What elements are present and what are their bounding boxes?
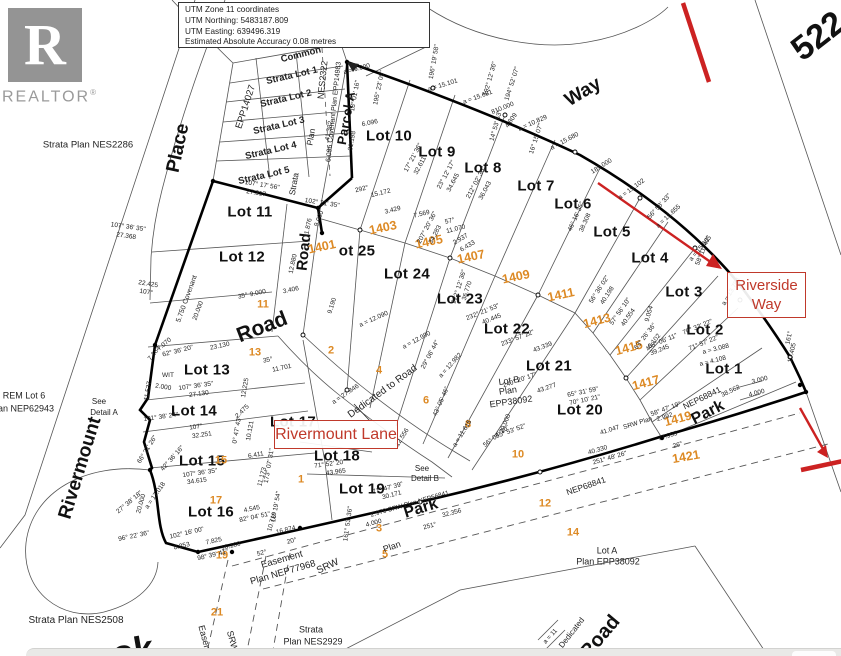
dimension-label: 34.615 <box>187 477 208 486</box>
plan-label: Strata <box>288 172 300 196</box>
dimension-label: 31.198 <box>348 131 358 152</box>
dimension-label: 35° <box>238 293 249 301</box>
plan-label: See <box>415 465 429 473</box>
dimension-label: WIT <box>162 373 174 380</box>
plan-label: EPP38092 <box>489 395 533 410</box>
dimension-label: 161° 53' 36" <box>343 506 354 542</box>
dimension-label: 107° 36' 35" <box>110 222 146 233</box>
address-number: 1421 <box>671 448 701 465</box>
plan-label: NES2322 <box>317 60 330 99</box>
dimension-label: 27.368 <box>116 232 137 241</box>
dimension-label: 43.965 <box>326 468 347 477</box>
dimension-label: 185.000 <box>590 158 613 176</box>
dimension-label: 35° <box>263 357 274 365</box>
dimension-label: 8.253 <box>173 542 190 552</box>
dimension-label: 11.537 <box>144 381 154 401</box>
utm-line: UTM Easting: 639496.319 <box>185 27 429 38</box>
dimension-label: 27.317 <box>246 189 267 199</box>
map-labels-layer: PlaceRivermountRoadRoadWayParkParkRoad52… <box>0 0 841 656</box>
lot-label: Lot 3 <box>665 285 702 300</box>
dimension-label: 52° <box>256 550 267 559</box>
plan-label: Detail B <box>411 475 439 483</box>
dimension-label: 16° 19' 54" <box>271 491 283 523</box>
street-label: Rivermount <box>55 415 104 522</box>
plan-label: Detail A <box>90 409 118 417</box>
dimension-label: 3.429 <box>384 206 401 216</box>
dimension-label: 6.411 <box>248 451 265 460</box>
dimension-label: 292° <box>355 185 370 195</box>
lot-label: Lot 16 <box>188 505 234 520</box>
address-number: 1401 <box>307 238 337 256</box>
plan-label: Strata <box>299 626 323 635</box>
lot-label: Lot 24 <box>384 267 430 282</box>
plan-label: Strata Plan NES2508 <box>28 616 123 626</box>
strata-lot-label: Strata Lot 1 <box>265 65 318 86</box>
plan-label: See <box>92 398 106 406</box>
dimension-label: 96° 22' 36" <box>118 531 150 544</box>
realtor-caption: REALTOR® <box>2 88 112 106</box>
plan-label: Plan <box>382 540 402 555</box>
address-number: 1409 <box>501 268 531 286</box>
dimension-label: 0° 47' 43" <box>232 416 243 445</box>
dimension-label: 66° 21' 26" <box>137 435 159 465</box>
dimension-label: SRW Plan <box>623 417 653 432</box>
plan-label: SRW <box>315 558 340 577</box>
address-number: 13 <box>249 348 261 359</box>
dimension-label: a = 15.102 <box>618 178 647 201</box>
dimension-label: 15.172 <box>371 188 392 199</box>
dimension-label: 10.121 <box>246 421 256 442</box>
dimension-label: 9.190 <box>327 297 338 314</box>
plan-label: NEP68841 <box>565 475 607 496</box>
realtor-logo: R <box>8 8 82 82</box>
dimension-label: a = 11.615 <box>452 419 474 448</box>
dimension-label: 3.406 <box>282 286 299 296</box>
address-number: 4 <box>376 366 382 377</box>
utm-line: Estimated Absolute Accuracy 0.08 metres <box>185 37 429 48</box>
registered-mark: ® <box>90 88 98 97</box>
lot-label: Lot 5 <box>593 225 630 240</box>
dimension-label: 43.339 <box>533 341 554 354</box>
street-label: Place <box>164 122 193 175</box>
dimension-label: 196° 19' 58" <box>429 44 441 80</box>
lot-label: Lot 10 <box>366 129 412 144</box>
street-label: Way <box>562 74 605 110</box>
plan-label: Plan EPP38092 <box>576 558 640 567</box>
plan-label: Strata Plan NES2286 <box>43 140 133 150</box>
dimension-label: 18° 01' 16" <box>350 80 362 112</box>
realtor-logo-r: R <box>24 16 66 74</box>
dimension-label: a = 17.018 <box>144 481 167 510</box>
dimension-label: 38.562 <box>721 385 742 400</box>
address-number: 14 <box>567 528 579 539</box>
address-number: 21 <box>211 608 223 619</box>
lot-label: Lot 13 <box>184 363 230 378</box>
dimension-label: a = 12.090 <box>359 311 390 330</box>
dimension-label: a = 15.680 <box>550 132 580 152</box>
dimension-label: a = 12.990 <box>402 331 432 351</box>
dimension-label: 195° 23' 05" <box>373 70 387 106</box>
dimension-label: 102° 16' 00" <box>169 527 205 541</box>
dimension-label: a = 15.101 <box>427 78 458 93</box>
dimension-label: 32.356 <box>442 508 463 519</box>
address-number: 6 <box>423 396 429 407</box>
utm-line: UTM Zone 11 coordinates <box>185 5 429 16</box>
plan-label: REM Lot 6 <box>3 392 46 401</box>
dimension-label: 26° <box>672 441 683 450</box>
dimension-label: 20° <box>286 538 297 547</box>
lot-label: Lot 4 <box>631 251 668 266</box>
dimension-label: 107° <box>139 289 153 298</box>
address-number: 2 <box>328 346 334 357</box>
plan-label: Plan <box>305 128 316 146</box>
lot-label: ot 25 <box>339 244 376 259</box>
strata-lot-label: Strata Lot 3 <box>252 115 305 136</box>
plan-label: Plan NEP62943 <box>0 405 54 414</box>
dimension-label: 36.043 <box>478 181 493 202</box>
address-number: 12 <box>539 499 551 510</box>
dimension-label: 32.251 <box>192 431 213 440</box>
dimension-label: a = 12.982 <box>438 352 464 379</box>
street-label: Road <box>234 308 291 346</box>
dimension-label: 16.874 <box>276 525 297 536</box>
dimension-label: a = 9.000 <box>343 63 371 76</box>
plan-label: EPP14027 <box>234 84 257 130</box>
address-number: 1411 <box>546 286 575 304</box>
address-number: 1 <box>298 475 304 486</box>
plan-label: Lot A <box>597 547 618 556</box>
address-number: 17 <box>210 496 222 507</box>
riverside-way-callout: Riverside Way <box>727 272 806 318</box>
dimension-label: 12.225 <box>241 378 251 399</box>
address-number: 10 <box>512 450 524 461</box>
address-number: 1403 <box>368 219 398 237</box>
address-number: 1413 <box>582 311 612 330</box>
dimension-label: 9.000 <box>314 210 326 228</box>
dimension-label: 23.130 <box>210 342 231 352</box>
dimension-label: 3.000 <box>751 376 768 386</box>
dimension-label: 4.000 <box>748 389 765 399</box>
dimension-label: 10.405 <box>788 343 798 364</box>
dimension-label: 9.000 <box>249 289 266 299</box>
dimension-label: 43.277 <box>537 383 558 396</box>
dimension-label: 9.054 <box>645 305 655 322</box>
rivermount-lane-callout: Rivermount Lane <box>274 420 398 449</box>
dimension-label: 20.000 <box>193 301 206 322</box>
strata-lot-label: Strata Lot 4 <box>244 140 297 161</box>
street-label: 522 <box>785 5 841 67</box>
dimension-label: 101° 38' 24" <box>143 412 179 423</box>
strata-lot-label: Common <box>280 45 322 64</box>
dimension-label: 2.000 <box>154 384 171 393</box>
plat-map: R REALTOR® UTM Zone 11 coordinatesUTM No… <box>0 0 841 656</box>
lot-label: Lot 7 <box>517 179 554 194</box>
dimension-label: 27.130 <box>189 390 210 399</box>
bottom-window-edge <box>26 648 841 656</box>
bottom-window-pill <box>792 651 836 656</box>
dimension-label: 43° 05' 46" <box>433 386 452 417</box>
plan-label: Plan NES2929 <box>283 638 342 647</box>
dimension-label: 251° <box>423 522 438 532</box>
address-number: 1417 <box>631 373 661 392</box>
strata-lot-label: Strata Lot 2 <box>259 88 312 109</box>
utm-line: UTM Northing: 5483187.809 <box>185 16 429 27</box>
dimension-label: 194° 52' 07" <box>504 66 521 101</box>
dimension-label: 11.701 <box>272 364 292 374</box>
address-number: 15 <box>215 456 227 467</box>
dimension-label: 29° 06' 44" <box>421 340 442 371</box>
utm-info-box: UTM Zone 11 coordinatesUTM Northing: 548… <box>178 2 430 48</box>
dimension-label: 56° 04' 20" <box>483 425 512 449</box>
dimension-label: 102° 21' 35" <box>304 198 340 210</box>
lot-label: Lot 12 <box>219 250 265 265</box>
lot-label: Lot 11 <box>227 205 272 220</box>
plan-label: Dedicated to Road <box>347 364 420 421</box>
address-number: 11 <box>257 300 269 311</box>
dimension-label: 41.047 <box>600 425 621 437</box>
